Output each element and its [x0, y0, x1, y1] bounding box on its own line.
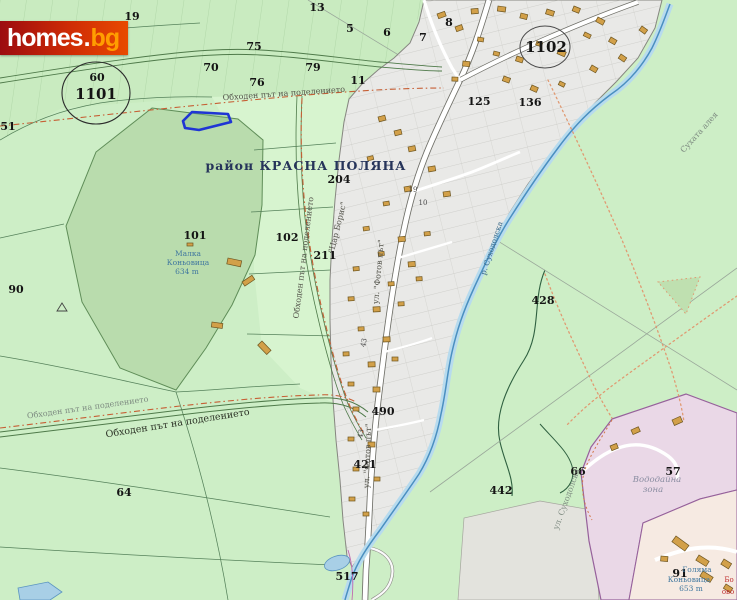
zone-number-1102: 1102 [525, 38, 567, 56]
parcel-number-75: 75 [246, 40, 261, 53]
parcel-number-101: 101 [184, 229, 207, 242]
homes-logo[interactable]: homes.bg [0, 21, 128, 55]
parcel-number-125: 125 [468, 95, 491, 108]
hill-name-line2: Коньовица [167, 258, 210, 267]
parcel-number-51: 51 [0, 120, 15, 133]
parcel-number-490: 490 [372, 405, 395, 418]
parcel-number-64: 64 [116, 486, 132, 499]
parcel-number-70: 70 [203, 61, 219, 74]
vododayna-label-line2: зона [643, 485, 663, 495]
map-canvas[interactable]: 19 13 5 6 8 7 75 70 76 79 11 60 1101 51 … [0, 0, 737, 600]
zone-number-1101: 1101 [75, 85, 117, 103]
parcel-number-5: 5 [346, 22, 354, 35]
parcel-number-13: 13 [309, 1, 324, 14]
parcel-number-517: 517 [336, 570, 359, 583]
parcel-number-428: 428 [532, 294, 555, 307]
vododayna-label-line1: Вододайна [632, 475, 681, 485]
parcel-number-8: 8 [445, 16, 453, 29]
parcel-number-102: 102 [276, 231, 299, 244]
parcel-number-60: 60 [89, 71, 105, 84]
cadastral-map: 19 13 5 6 8 7 75 70 76 79 11 60 1101 51 … [0, 0, 737, 600]
house-number-19: 19 [409, 186, 418, 194]
district-label: район КРАСНА ПОЛЯНА [206, 158, 407, 173]
red-street-fragment-b: ово [722, 588, 734, 596]
red-street-fragment-a: Бо [724, 576, 733, 584]
hill-name-line1: Малка [175, 249, 202, 258]
house-number-43a: 43 [359, 338, 368, 348]
hill2-name-line2: Коньовица [668, 575, 711, 584]
parcel-number-76: 76 [249, 76, 265, 89]
hill-elevation: 634 m [175, 267, 199, 276]
hill2-elevation: 653 m [679, 584, 703, 593]
parcel-number-7: 7 [419, 31, 427, 44]
parcel-number-442: 442 [490, 484, 513, 497]
hill2-name-line1: Голяма [682, 565, 712, 574]
parcel-number-136: 136 [519, 96, 542, 109]
house-number-10: 10 [419, 199, 428, 207]
parcel-number-11: 11 [350, 74, 365, 87]
parcel-number-79: 79 [305, 61, 320, 74]
parcel-number-6: 6 [383, 26, 391, 39]
logo-text-homes: homes [7, 26, 83, 51]
gray-wedge-area [458, 501, 599, 600]
logo-text-bg: bg [91, 26, 120, 51]
parcel-number-204: 204 [328, 173, 351, 186]
parcel-number-90: 90 [8, 283, 24, 296]
logo-text-dot: . [84, 26, 90, 51]
